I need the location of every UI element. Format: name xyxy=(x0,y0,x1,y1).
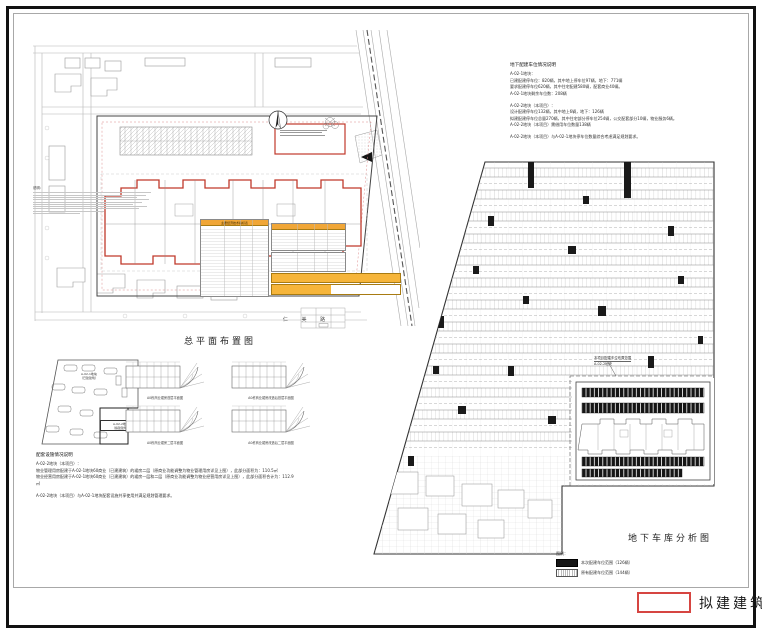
drawing-sheet: 说明： 主要经济技术指标表 总平面布置图 仁 美 路 地下配建车位情况说明 A-… xyxy=(0,0,762,635)
inner-frame xyxy=(13,13,749,588)
proposed-building-swatch xyxy=(637,592,691,613)
proposed-building-label: 拟建建筑 xyxy=(699,593,762,613)
